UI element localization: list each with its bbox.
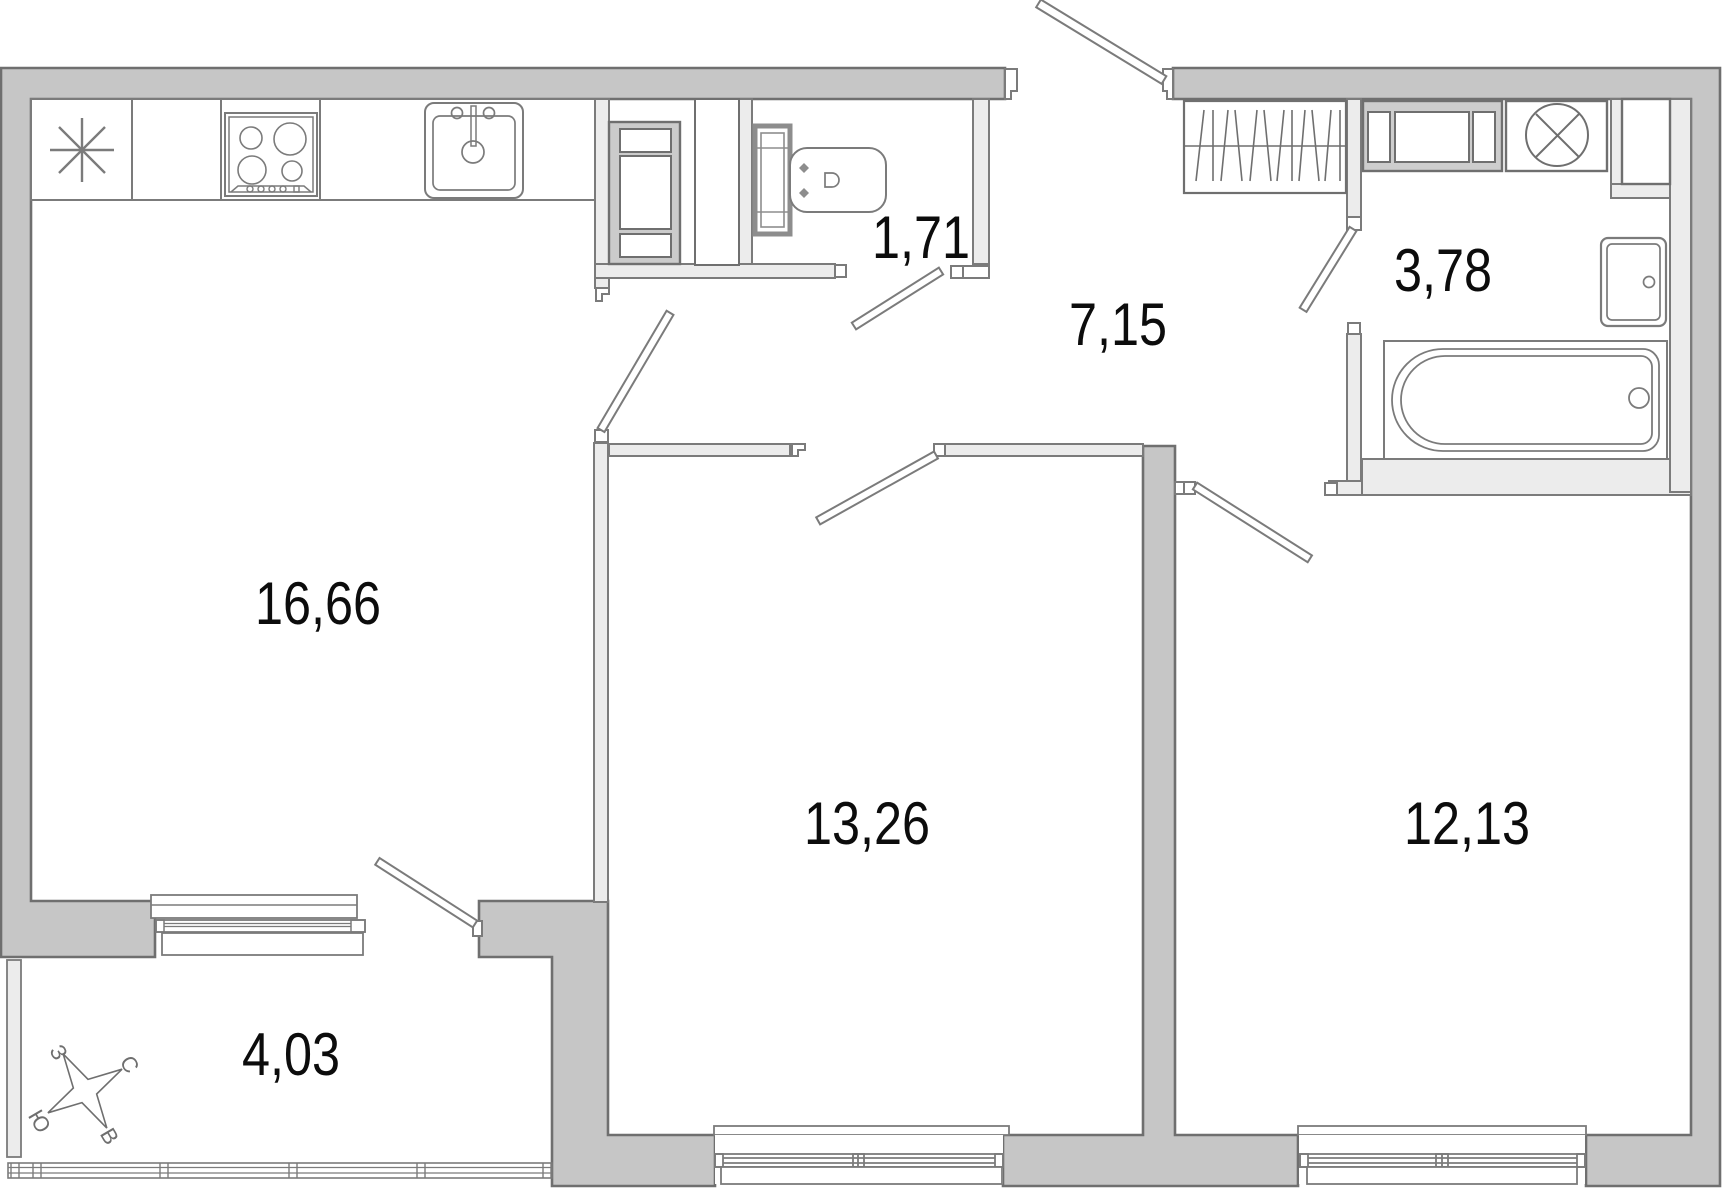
svg-text:4,03: 4,03 (242, 1021, 340, 1088)
svg-text:12,13: 12,13 (1404, 790, 1530, 857)
svg-text:1,71: 1,71 (872, 204, 970, 271)
svg-text:7,15: 7,15 (1069, 291, 1167, 358)
svg-text:16,66: 16,66 (255, 570, 381, 637)
svg-text:3,78: 3,78 (1394, 237, 1492, 304)
svg-text:13,26: 13,26 (804, 790, 930, 857)
